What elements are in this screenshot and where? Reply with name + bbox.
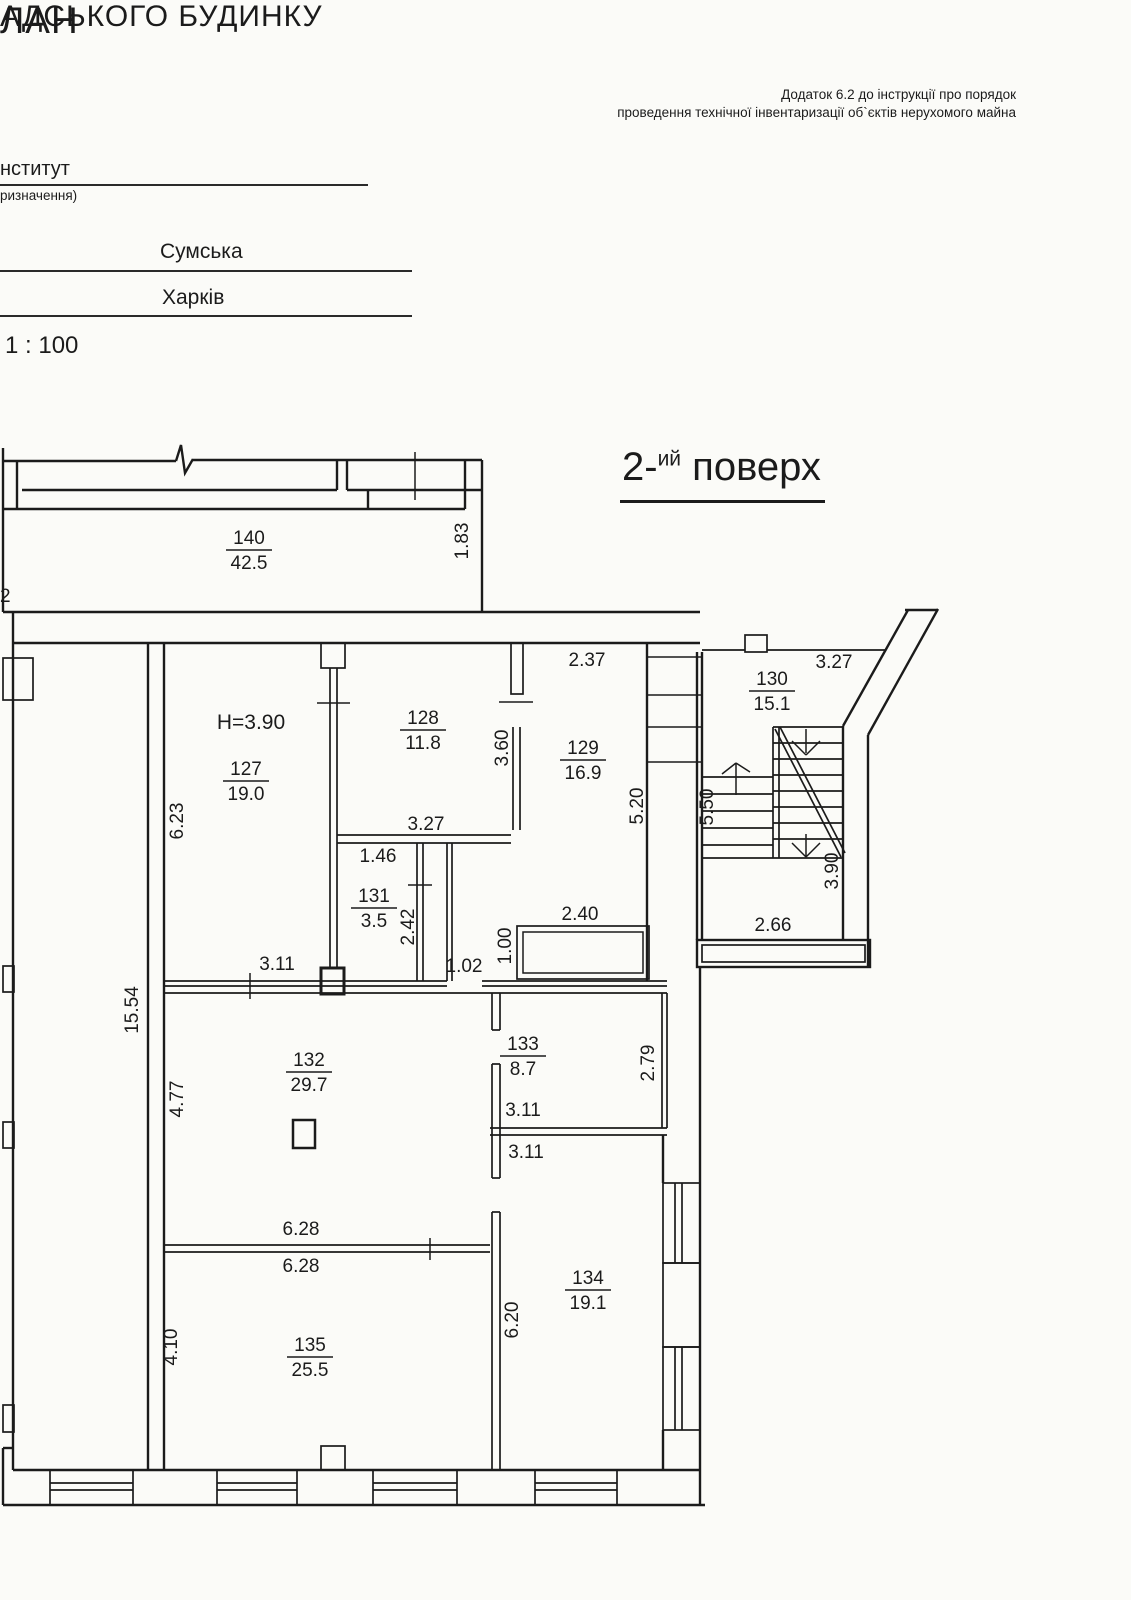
- chamfer-wall-outer: [868, 609, 938, 735]
- dim-1.83: 1.83: [452, 523, 473, 560]
- dim-6.20: 6.20: [502, 1302, 523, 1339]
- wall-pier: [321, 643, 345, 668]
- dim-3.11-room134: 3.11: [508, 1142, 544, 1163]
- dim-15.54: 15.54: [122, 986, 143, 1034]
- window: [373, 1470, 457, 1505]
- svg-text:15.1: 15.1: [754, 694, 791, 715]
- pilaster: [3, 658, 33, 700]
- room-133-label: 1338.7: [500, 1034, 546, 1080]
- svg-text:16.9: 16.9: [565, 763, 602, 784]
- window: [217, 1470, 297, 1505]
- room-130-label: 13015.1: [749, 669, 795, 715]
- dim-6.28-room135: 6.28: [283, 1256, 320, 1277]
- chamfer-wall-inner: [843, 610, 908, 726]
- dimension-labels: 1.83 2 2.37 6.23 3.60 3.27 5.20 3.27 5.5…: [0, 523, 852, 1366]
- dim-4.77: 4.77: [167, 1081, 188, 1118]
- room-134-label: 13419.1: [565, 1268, 611, 1314]
- dim-5.50: 5.50: [697, 789, 718, 826]
- svg-text:19.0: 19.0: [228, 784, 265, 805]
- room-140-label: 14042.5: [226, 528, 272, 574]
- stair-up-arrow: [722, 763, 750, 795]
- room-127-label: 12719.0: [223, 759, 269, 805]
- dim-2.40: 2.40: [562, 904, 599, 925]
- svg-text:132: 132: [293, 1050, 325, 1071]
- stair-down-arrow-bottom: [792, 834, 820, 857]
- dim-3.90: 3.90: [822, 853, 843, 890]
- floor-plan-drawing: 14042.5 12719.0 12811.8 12916.9 13015.1 …: [0, 0, 1131, 1600]
- scanned-floor-plan-page: ЛАН АДСЬКОГО БУДИНКУ Додаток 6.2 до інст…: [0, 0, 1131, 1600]
- stair-rail-line: [780, 727, 845, 853]
- window: [535, 1470, 617, 1505]
- dim-3.27-stairs: 3.27: [816, 652, 853, 673]
- svg-text:127: 127: [230, 759, 262, 780]
- svg-text:130: 130: [756, 669, 788, 690]
- dim-2.42: 2.42: [398, 909, 419, 946]
- dim-5.20: 5.20: [627, 788, 648, 825]
- dim-1.00: 1.00: [495, 928, 516, 965]
- svg-text:25.5: 25.5: [292, 1360, 329, 1381]
- room-128-label: 12811.8: [400, 708, 446, 754]
- wall-pier: [511, 643, 523, 694]
- svg-text:11.8: 11.8: [405, 733, 441, 754]
- svg-text:131: 131: [358, 886, 390, 907]
- bottom-wall: [3, 1446, 705, 1505]
- dim-4.10: 4.10: [161, 1329, 182, 1366]
- ceiling-height-label: H=3.90: [217, 711, 285, 734]
- dim-6.28-room132: 6.28: [283, 1219, 320, 1240]
- svg-text:135: 135: [294, 1335, 326, 1356]
- dim-1.46: 1.46: [360, 846, 397, 867]
- svg-text:140: 140: [233, 528, 265, 549]
- room-131-label: 1313.5: [351, 886, 397, 932]
- svg-text:8.7: 8.7: [510, 1059, 536, 1080]
- svg-text:133: 133: [507, 1034, 539, 1055]
- dim-2.37: 2.37: [569, 650, 606, 671]
- svg-text:19.1: 19.1: [570, 1293, 607, 1314]
- dim-cut-2: 2: [0, 586, 11, 607]
- room-135-label: 13525.5: [287, 1335, 333, 1381]
- column: [293, 1120, 315, 1148]
- svg-text:128: 128: [407, 708, 439, 729]
- dim-3.11-corridor: 3.11: [259, 954, 295, 975]
- svg-text:129: 129: [567, 738, 599, 759]
- stair-rail-line: [775, 729, 841, 857]
- wall-pier: [663, 1263, 700, 1347]
- pilaster: [321, 1446, 345, 1470]
- room-129-label: 12916.9: [560, 738, 606, 784]
- wall-break-symbol: [176, 445, 193, 473]
- dim-3.11-room133: 3.11: [505, 1100, 541, 1121]
- dim-2.66: 2.66: [755, 915, 792, 936]
- svg-text:134: 134: [572, 1268, 604, 1289]
- ventilation-shaft: [517, 926, 649, 979]
- dim-1.02: 1.02: [446, 956, 483, 977]
- dim-3.27-room128: 3.27: [408, 814, 445, 835]
- interior-walls-lower: [164, 967, 700, 1505]
- svg-text:3.5: 3.5: [361, 911, 387, 932]
- room-132-label: 13229.7: [286, 1050, 332, 1096]
- window: [50, 1470, 133, 1505]
- svg-text:42.5: 42.5: [231, 553, 268, 574]
- dim-3.60: 3.60: [492, 730, 513, 767]
- stairs: [702, 727, 845, 858]
- dim-6.23: 6.23: [167, 803, 188, 840]
- stair-down-arrow-top: [792, 729, 820, 755]
- dim-2.79: 2.79: [638, 1045, 659, 1082]
- svg-text:29.7: 29.7: [291, 1075, 328, 1096]
